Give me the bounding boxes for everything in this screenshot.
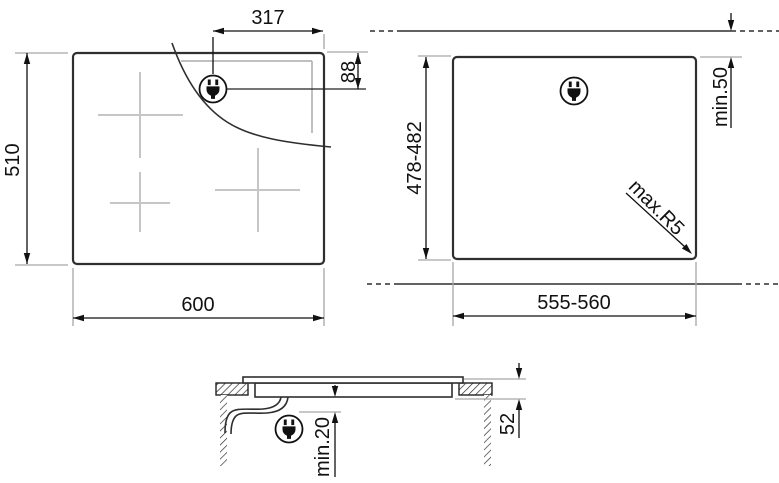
dimension-min-clearance-below: min.20 (312, 385, 338, 477)
dim-label-plug-offset-x: 317 (251, 7, 284, 29)
cabinet-panel-right (484, 395, 491, 466)
appliance-top-view: 317 88 510 600 (2, 7, 368, 326)
dimension-cutout-width: 555-560 (453, 292, 696, 319)
cabinet-panel-left (220, 395, 227, 466)
hob-outline (73, 53, 324, 264)
power-plug-icon (200, 76, 227, 103)
power-plug-icon (276, 416, 303, 443)
dim-label-plug-offset-y: 88 (338, 61, 360, 83)
side-section-view: min.20 52 (216, 363, 526, 477)
dim-label-min-rear-clearance: min.50 (710, 67, 732, 127)
installation-drawing: 317 88 510 600 (0, 0, 779, 483)
worktop-section-right (459, 383, 492, 395)
hob-body-section (255, 383, 452, 397)
dimension-overall-width: 600 (73, 294, 324, 321)
drawing-canvas: 317 88 510 600 (0, 0, 779, 483)
dim-label-cutout-depth: 478-482 (404, 121, 426, 194)
hob-glass-section (243, 377, 463, 383)
dim-label-overall-width: 600 (181, 294, 214, 316)
dimension-cutout-depth: 478-482 (404, 57, 429, 259)
power-plug-icon (561, 78, 588, 105)
dim-label-overall-depth: 510 (2, 143, 24, 176)
worktop-cutout-view: 478-482 min.50 max.R5 555-560 (367, 13, 779, 326)
dim-label-built-in-height: 52 (497, 413, 519, 435)
dimension-built-in-height: 52 (497, 363, 522, 438)
worktop-section-left (216, 383, 248, 395)
dim-label-min-clearance-below: min.20 (312, 417, 334, 477)
dimension-overall-depth: 510 (2, 53, 30, 264)
dimension-plug-offset-y: 88 (338, 53, 361, 89)
dim-label-cutout-width: 555-560 (537, 292, 610, 314)
